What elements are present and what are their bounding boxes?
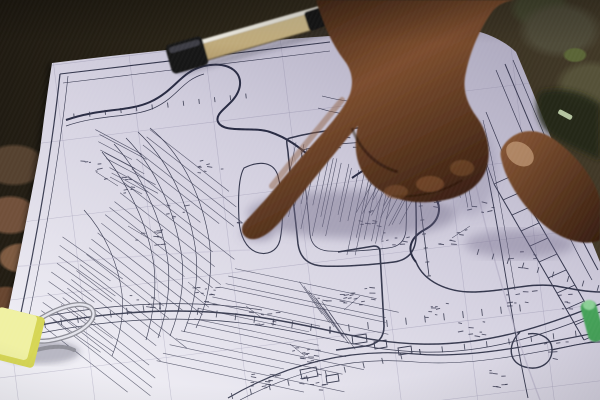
- knuckle-highlight: [450, 160, 474, 176]
- scene-svg: [0, 0, 600, 400]
- photo-scene: [0, 0, 600, 400]
- knuckle-highlight: [416, 176, 444, 192]
- pen-cap-tip: [583, 300, 595, 310]
- knuckle-highlight: [384, 185, 408, 199]
